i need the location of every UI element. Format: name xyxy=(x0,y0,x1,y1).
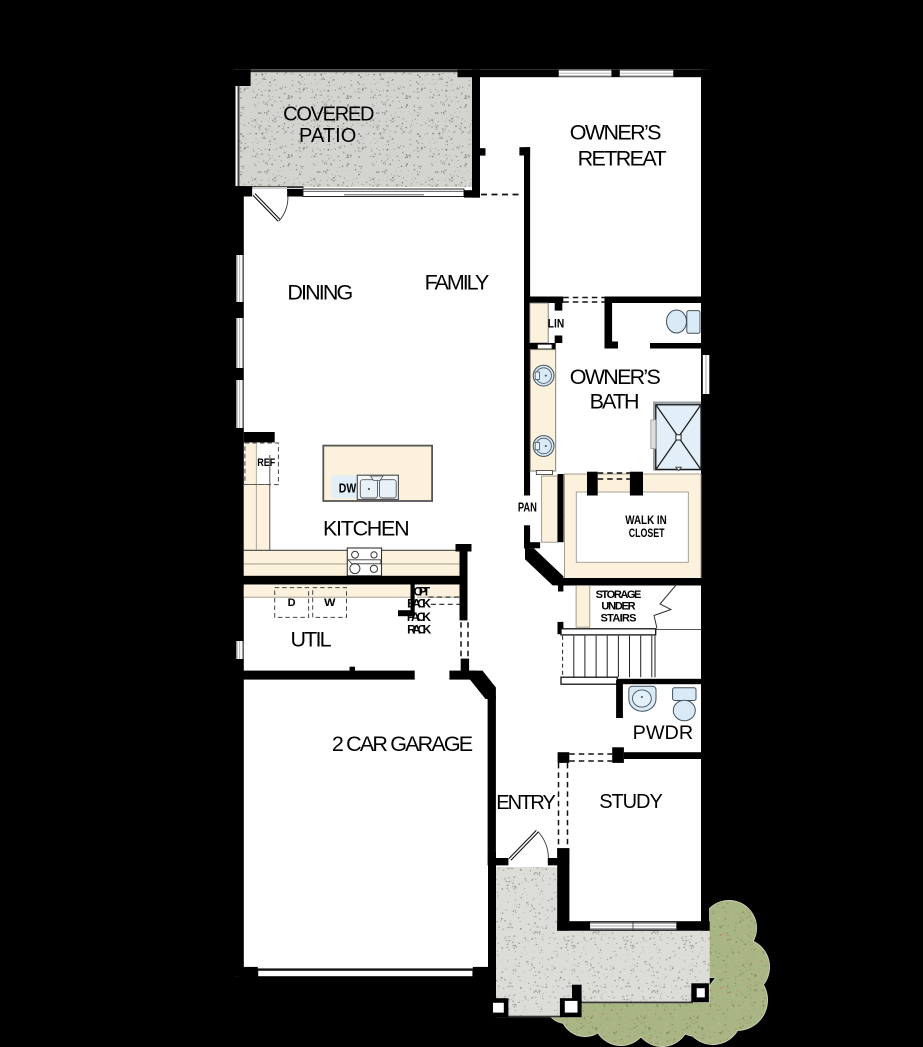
svg-text:OWNER’S: OWNER’S xyxy=(570,365,661,389)
svg-text:STUDY: STUDY xyxy=(599,791,663,813)
svg-text:W: W xyxy=(324,597,336,609)
svg-text:OWNER’S: OWNER’S xyxy=(570,121,662,145)
svg-text:STORAGE: STORAGE xyxy=(596,589,642,601)
svg-text:ENTRY: ENTRY xyxy=(496,792,556,814)
svg-text:D: D xyxy=(288,597,296,609)
svg-text:REF: REF xyxy=(257,457,275,469)
svg-text:2 CAR GARAGE: 2 CAR GARAGE xyxy=(332,732,473,756)
svg-text:LIN: LIN xyxy=(548,316,564,330)
svg-text:DW: DW xyxy=(339,482,357,496)
svg-text:BATH: BATH xyxy=(590,390,640,414)
svg-text:RACK: RACK xyxy=(407,622,431,636)
svg-text:FAMILY: FAMILY xyxy=(425,270,490,294)
svg-text:PWDR: PWDR xyxy=(633,723,694,744)
svg-text:STAIRS: STAIRS xyxy=(601,612,637,624)
svg-text:WALK IN: WALK IN xyxy=(625,513,667,527)
svg-text:UNDER: UNDER xyxy=(601,601,635,613)
svg-text:RETREAT: RETREAT xyxy=(578,147,667,171)
svg-text:UTIL: UTIL xyxy=(290,628,331,652)
svg-text:CLOSET: CLOSET xyxy=(629,526,665,540)
svg-text:DINING: DINING xyxy=(287,280,353,304)
svg-text:KITCHEN: KITCHEN xyxy=(323,517,410,541)
svg-text:BACK: BACK xyxy=(407,597,431,611)
svg-text:PAN: PAN xyxy=(518,501,537,515)
svg-text:PATIO: PATIO xyxy=(299,125,356,147)
svg-text:COVERED: COVERED xyxy=(283,104,374,126)
